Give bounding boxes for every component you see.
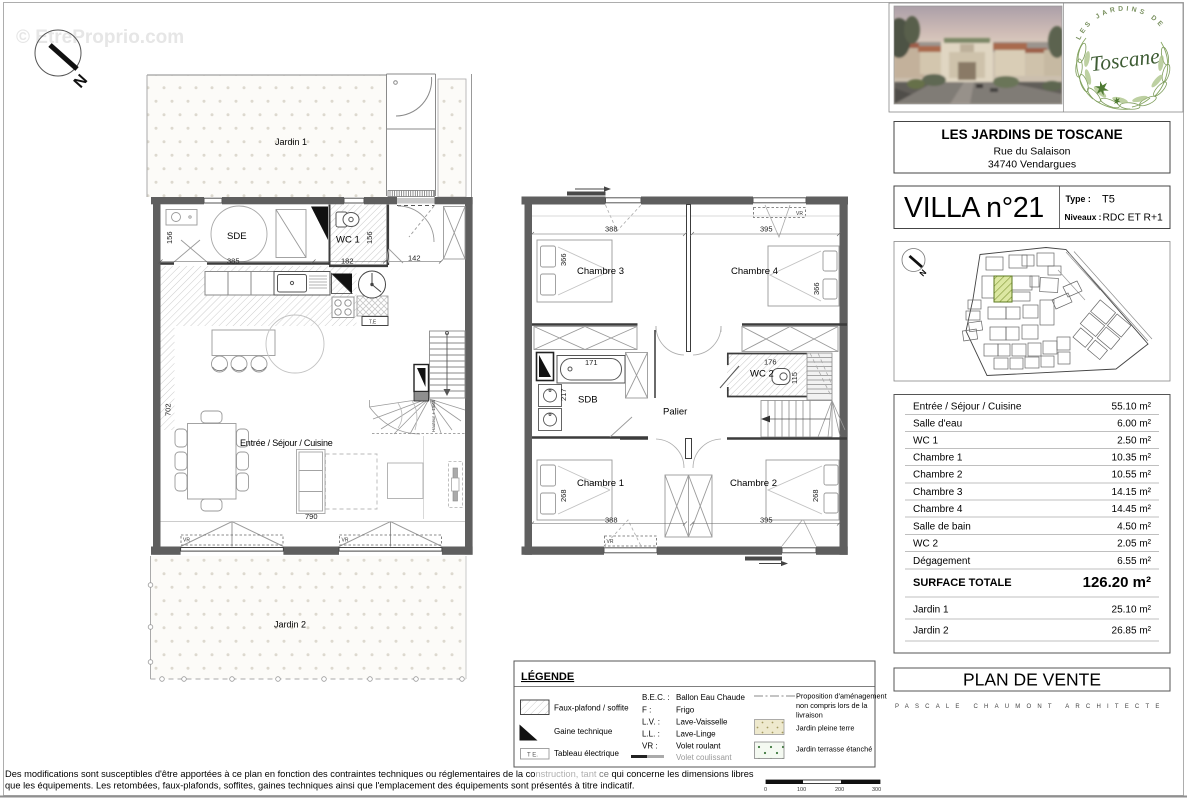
svg-text:Gaine technique: Gaine technique: [554, 727, 613, 736]
svg-text:Chambre 2: Chambre 2: [913, 470, 963, 481]
svg-text:171: 171: [585, 358, 598, 367]
svg-text:388: 388: [605, 516, 618, 525]
svg-text:T E.: T E.: [527, 753, 538, 759]
svg-text:156: 156: [365, 231, 374, 244]
svg-text:Salle de bain: Salle de bain: [913, 522, 971, 533]
svg-text:LÉGENDE: LÉGENDE: [521, 670, 574, 683]
svg-text:RDC ET R+1: RDC ET R+1: [1103, 213, 1163, 224]
svg-text:34740 Vendargues: 34740 Vendargues: [988, 159, 1076, 171]
svg-text:Frigo: Frigo: [676, 706, 695, 715]
svg-text:366: 366: [559, 253, 568, 266]
svg-text:VR :: VR :: [642, 742, 658, 751]
svg-text:WC 2: WC 2: [913, 539, 938, 550]
svg-text:SDE: SDE: [227, 231, 247, 242]
svg-text:702: 702: [164, 403, 173, 416]
svg-text:268: 268: [559, 489, 568, 502]
svg-text:Type :: Type :: [1066, 194, 1091, 204]
svg-text:Des modifications sont suscept: Des modifications sont susceptibles d'êt…: [5, 769, 754, 779]
svg-text:Chambre 1: Chambre 1: [577, 478, 624, 489]
svg-text:Niveaux :: Niveaux :: [1065, 212, 1102, 222]
svg-text:WC 1: WC 1: [336, 235, 360, 246]
svg-text:SDB: SDB: [578, 395, 598, 406]
svg-text:Chambre 2: Chambre 2: [730, 478, 777, 489]
svg-text:Jardin terrasse étanché: Jardin terrasse étanché: [796, 745, 872, 754]
svg-text:55.10 m²: 55.10 m²: [1112, 402, 1152, 413]
svg-text:B.E.C. :: B.E.C. :: [642, 693, 670, 702]
svg-text:176: 176: [764, 358, 777, 367]
svg-text:VR: VR: [342, 538, 349, 544]
svg-text:L.L. :: L.L. :: [642, 730, 660, 739]
svg-text:VR: VR: [183, 538, 190, 544]
svg-text:142: 142: [408, 254, 421, 263]
svg-text:Lave-Vaisselle: Lave-Vaisselle: [676, 718, 728, 727]
svg-text:26.85 m²: 26.85 m²: [1112, 626, 1152, 637]
svg-text:Jardin 2: Jardin 2: [913, 626, 949, 637]
svg-text:268: 268: [811, 489, 820, 502]
svg-text:Dégagement: Dégagement: [913, 556, 970, 567]
svg-text:395: 395: [760, 516, 773, 525]
svg-text:SURFACE TOTALE: SURFACE TOTALE: [913, 577, 1012, 589]
svg-text:2.05 m²: 2.05 m²: [1117, 539, 1152, 550]
svg-text:115: 115: [790, 372, 799, 384]
svg-text:10.55 m²: 10.55 m²: [1112, 470, 1152, 481]
svg-text:Lave-Linge: Lave-Linge: [676, 730, 716, 739]
svg-text:Entrée / Séjour / Cuisine: Entrée / Séjour / Cuisine: [240, 438, 333, 448]
svg-text:Chambre 3: Chambre 3: [913, 487, 963, 498]
svg-text:Volet coulissant: Volet coulissant: [676, 753, 732, 762]
svg-text:4.50 m²: 4.50 m²: [1117, 522, 1152, 533]
svg-text:PASCALE CHAUMONT ARCHITECTE: PASCALE CHAUMONT ARCHITECTE: [895, 704, 1166, 710]
svg-text:156: 156: [165, 231, 174, 244]
svg-text:Chambre 4: Chambre 4: [913, 504, 963, 515]
svg-text:Faux-plafond / soffite: Faux-plafond / soffite: [554, 704, 629, 713]
svg-text:que les équipements. Les retom: que les équipements. Les retombées, faux…: [5, 781, 635, 791]
svg-text:Jardin 1: Jardin 1: [913, 605, 949, 616]
svg-text:Rue du Salaison: Rue du Salaison: [993, 146, 1070, 158]
svg-text:200: 200: [835, 787, 844, 793]
svg-text:T.E: T.E: [369, 320, 377, 326]
svg-text:790: 790: [305, 512, 318, 521]
svg-text:385: 385: [227, 257, 240, 266]
svg-text:PLAN DE VENTE: PLAN DE VENTE: [963, 670, 1101, 690]
svg-text:Entrée / Séjour / Cuisine: Entrée / Séjour / Cuisine: [913, 402, 1022, 413]
svg-text:Jardin 1: Jardin 1: [275, 137, 307, 147]
svg-text:Chambre 3: Chambre 3: [577, 266, 624, 277]
svg-text:F :: F :: [642, 706, 651, 715]
svg-text:6.55 m²: 6.55 m²: [1117, 556, 1152, 567]
svg-text:182: 182: [341, 257, 354, 266]
svg-text:L.V. :: L.V. :: [642, 718, 660, 727]
svg-text:2.50 m²: 2.50 m²: [1117, 436, 1152, 447]
svg-text:14.45 m²: 14.45 m²: [1112, 504, 1152, 515]
svg-text:366: 366: [812, 282, 821, 295]
svg-text:non compris lors de la: non compris lors de la: [796, 701, 868, 710]
svg-text:100: 100: [797, 787, 806, 793]
svg-text:6.00 m²: 6.00 m²: [1117, 419, 1152, 430]
svg-text:livraison: livraison: [796, 711, 823, 720]
svg-text:Salle d'eau: Salle d'eau: [913, 419, 962, 430]
svg-text:Hauteur + 1m65: Hauteur + 1m65: [431, 399, 436, 432]
svg-text:Chambre 1: Chambre 1: [913, 453, 963, 464]
svg-text:14.15 m²: 14.15 m²: [1112, 487, 1152, 498]
svg-text:VR: VR: [607, 539, 614, 545]
svg-text:WC 1: WC 1: [913, 436, 938, 447]
svg-text:LES JARDINS DE TOSCANE: LES JARDINS DE TOSCANE: [941, 127, 1122, 142]
svg-text:300: 300: [872, 787, 881, 793]
svg-text:T5: T5: [1102, 194, 1115, 206]
svg-text:WC 2: WC 2: [750, 369, 774, 380]
svg-text:Volet roulant: Volet roulant: [676, 742, 721, 751]
svg-text:Jardin pleine terre: Jardin pleine terre: [796, 724, 854, 733]
svg-text:126.20 m²: 126.20 m²: [1083, 574, 1151, 591]
svg-text:Ballon Eau Chaude: Ballon Eau Chaude: [676, 693, 745, 702]
svg-text:10.35 m²: 10.35 m²: [1112, 453, 1152, 464]
svg-text:0: 0: [764, 787, 767, 793]
svg-text:388: 388: [605, 225, 618, 234]
svg-text:Chambre 4: Chambre 4: [731, 266, 778, 277]
svg-text:395: 395: [760, 225, 773, 234]
svg-text:VILLA n°21: VILLA n°21: [904, 192, 1044, 224]
svg-text:Jardin 2: Jardin 2: [274, 620, 306, 630]
svg-text:25.10 m²: 25.10 m²: [1112, 605, 1152, 616]
svg-text:Proposition d'aménagement: Proposition d'aménagement: [796, 692, 887, 701]
svg-text:Palier: Palier: [663, 407, 687, 418]
svg-text:217: 217: [559, 388, 568, 401]
svg-text:Tableau électrique: Tableau électrique: [554, 749, 619, 758]
